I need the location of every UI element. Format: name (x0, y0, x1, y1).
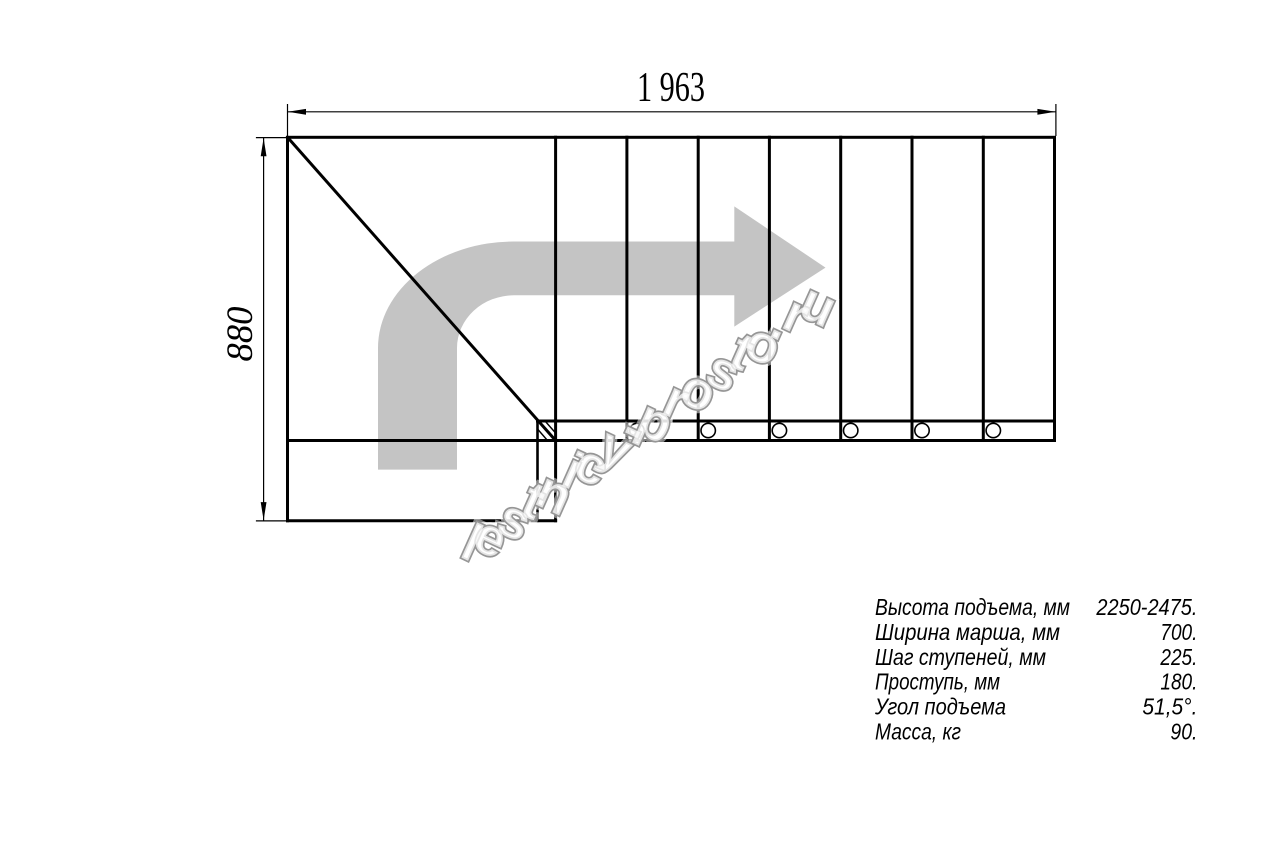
svg-text:Высота подъема, мм: Высота подъема, мм (875, 594, 1070, 620)
svg-text:Проступь, мм: Проступь, мм (875, 669, 1000, 695)
svg-text:lestnicy-prosto.ru: lestnicy-prosto.ru (436, 262, 864, 590)
svg-text:880: 880 (220, 306, 261, 361)
svg-text:Шаг ступеней, мм: Шаг ступеней, мм (875, 644, 1046, 670)
svg-text:2250-2475.: 2250-2475. (1096, 594, 1198, 620)
svg-text:180.: 180. (1160, 669, 1197, 695)
svg-text:Угол подъема: Угол подъема (874, 694, 1006, 720)
svg-text:Ширина марша, мм: Ширина марша, мм (875, 619, 1060, 645)
svg-text:1 963: 1 963 (637, 65, 705, 111)
svg-text:51,5°.: 51,5°. (1142, 694, 1197, 720)
svg-text:90.: 90. (1170, 719, 1197, 745)
svg-text:700.: 700. (1160, 619, 1197, 645)
svg-text:225.: 225. (1160, 644, 1198, 670)
svg-text:Масса, кг: Масса, кг (875, 719, 961, 745)
